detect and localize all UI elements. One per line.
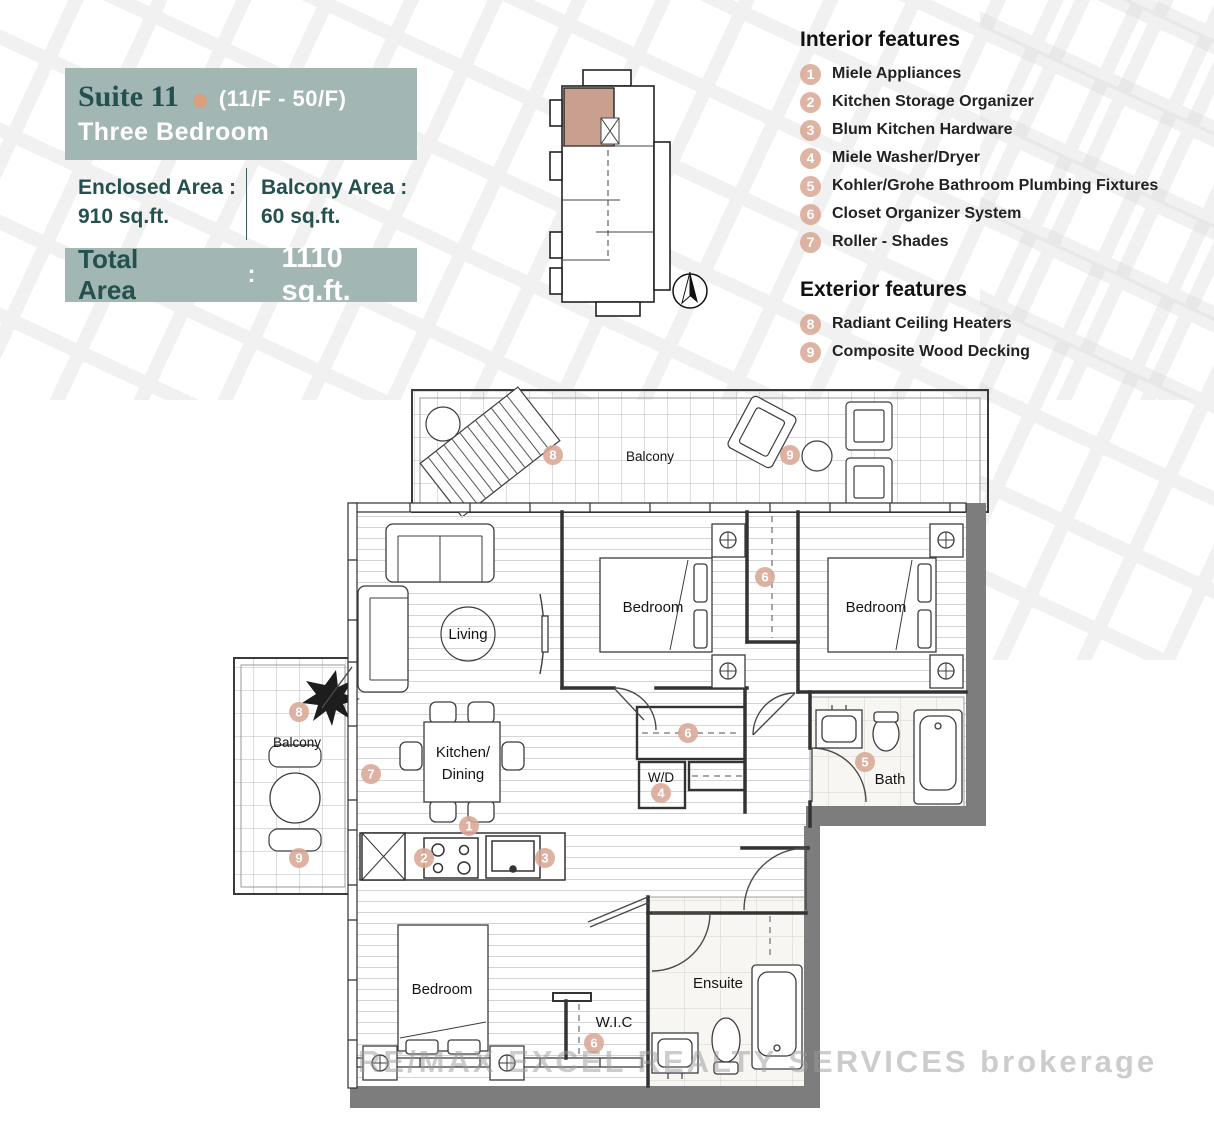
svg-text:6: 6 bbox=[761, 570, 768, 585]
feature-number-badge: 6 bbox=[800, 204, 821, 225]
room-label-balcony-top: Balcony bbox=[626, 449, 674, 464]
floorplan: Balcony Balcony bbox=[220, 380, 1010, 1120]
total-area-colon: : bbox=[247, 261, 255, 289]
svg-text:9: 9 bbox=[786, 448, 793, 463]
kitchen-counter bbox=[360, 833, 565, 880]
suite-dot-icon bbox=[193, 94, 207, 108]
feature-number-badge: 4 bbox=[800, 148, 821, 169]
suite-floor-range: (11/F - 50/F) bbox=[219, 86, 347, 111]
compass-icon bbox=[673, 272, 707, 308]
enclosed-area: Enclosed Area : 910 sq.ft. bbox=[78, 176, 236, 229]
feature-item: 5Kohler/Grohe Bathroom Plumbing Fixtures bbox=[800, 172, 1200, 200]
feature-label: Blum Kitchen Hardware bbox=[832, 121, 1012, 139]
total-area-box: Total Area : 1110 sq.ft. bbox=[65, 248, 417, 302]
feature-number-badge: 8 bbox=[800, 314, 821, 335]
room-label-ensuite: Ensuite bbox=[693, 975, 743, 992]
svg-text:2: 2 bbox=[420, 851, 427, 866]
svg-text:9: 9 bbox=[295, 851, 302, 866]
svg-text:1: 1 bbox=[465, 819, 472, 834]
balcony-round-table bbox=[802, 441, 832, 471]
feature-label: Miele Washer/Dryer bbox=[832, 149, 980, 167]
balcony-area-value: 60 sq.ft. bbox=[261, 205, 407, 229]
feature-number-badge: 2 bbox=[800, 92, 821, 113]
suite-name: Suite 11 bbox=[78, 80, 179, 113]
feature-label: Closet Organizer System bbox=[832, 205, 1021, 223]
plan-marker-7: 7 bbox=[361, 764, 381, 784]
plan-marker-5: 5 bbox=[855, 752, 875, 772]
balcony-left-chair-bottom bbox=[269, 829, 321, 851]
feature-number-badge: 7 bbox=[800, 232, 821, 253]
svg-text:5: 5 bbox=[861, 755, 868, 770]
area-row: Enclosed Area : 910 sq.ft. Balcony Area … bbox=[65, 160, 417, 248]
svg-text:7: 7 bbox=[367, 767, 374, 782]
plan-marker-1: 1 bbox=[459, 816, 479, 836]
keyplan bbox=[535, 35, 715, 330]
area-divider bbox=[246, 168, 247, 240]
total-area-label: Total Area bbox=[78, 244, 199, 306]
svg-text:8: 8 bbox=[549, 448, 556, 463]
plan-marker-6: 6 bbox=[678, 723, 698, 743]
feature-number-badge: 9 bbox=[800, 342, 821, 363]
balcony-left-table bbox=[270, 773, 320, 823]
plan-marker-8: 8 bbox=[289, 702, 309, 722]
exterior-features-list: 8Radiant Ceiling Heaters9Composite Wood … bbox=[800, 310, 1200, 366]
balcony-area-label: Balcony Area : bbox=[261, 176, 407, 200]
feature-item: 7Roller - Shades bbox=[800, 228, 1200, 256]
plan-marker-9: 9 bbox=[780, 445, 800, 465]
room-label-wd: W/D bbox=[648, 770, 674, 785]
interior-features-list: 1Miele Appliances2Kitchen Storage Organi… bbox=[800, 60, 1200, 256]
room-label-living: Living bbox=[448, 626, 487, 643]
svg-text:3: 3 bbox=[541, 851, 548, 866]
enclosed-area-label: Enclosed Area : bbox=[78, 176, 236, 200]
plan-marker-4: 4 bbox=[651, 783, 671, 803]
feature-label: Kitchen Storage Organizer bbox=[832, 93, 1034, 111]
svg-text:6: 6 bbox=[684, 726, 691, 741]
feature-label: Radiant Ceiling Heaters bbox=[832, 315, 1012, 333]
interior-features-title: Interior features bbox=[800, 28, 1200, 52]
svg-text:4: 4 bbox=[657, 786, 665, 801]
plan-marker-6: 6 bbox=[755, 567, 775, 587]
suite-title-box: Suite 11(11/F - 50/F) Three Bedroom bbox=[65, 68, 417, 160]
balcony-top-area: Balcony bbox=[412, 387, 988, 517]
suite-type: Three Bedroom bbox=[78, 118, 269, 147]
balcony-side-table bbox=[426, 407, 460, 441]
room-label-kitchen-1: Kitchen/ bbox=[436, 744, 491, 761]
feature-item: 2Kitchen Storage Organizer bbox=[800, 88, 1200, 116]
feature-label: Miele Appliances bbox=[832, 65, 961, 83]
feature-number-badge: 1 bbox=[800, 64, 821, 85]
room-label-kitchen-2: Dining bbox=[442, 766, 485, 783]
exterior-features-title: Exterior features bbox=[800, 278, 1200, 302]
room-label-bath: Bath bbox=[875, 771, 906, 788]
room-label-bedroom3: Bedroom bbox=[412, 981, 473, 998]
feature-label: Roller - Shades bbox=[832, 233, 948, 251]
room-label-bedroom1: Bedroom bbox=[623, 599, 684, 616]
watermark: RE/MAX EXCEL REALTY SERVICES brokerage bbox=[358, 1044, 858, 1080]
plan-marker-8: 8 bbox=[543, 445, 563, 465]
plan-marker-9: 9 bbox=[289, 848, 309, 868]
svg-text:8: 8 bbox=[295, 705, 302, 720]
feature-item: 1Miele Appliances bbox=[800, 60, 1200, 88]
balcony-area: Balcony Area : 60 sq.ft. bbox=[261, 176, 407, 229]
feature-label: Composite Wood Decking bbox=[832, 343, 1030, 361]
feature-item: 9Composite Wood Decking bbox=[800, 338, 1200, 366]
feature-item: 4Miele Washer/Dryer bbox=[800, 144, 1200, 172]
suite-header-card: Suite 11(11/F - 50/F) Three Bedroom Encl… bbox=[65, 68, 417, 302]
feature-item: 8Radiant Ceiling Heaters bbox=[800, 310, 1200, 338]
room-label-bedroom2: Bedroom bbox=[846, 599, 907, 616]
feature-label: Kohler/Grohe Bathroom Plumbing Fixtures bbox=[832, 177, 1158, 195]
feature-item: 3Blum Kitchen Hardware bbox=[800, 116, 1200, 144]
total-area-value: 1110 sq.ft. bbox=[281, 242, 417, 308]
room-label-balcony-left: Balcony bbox=[273, 735, 321, 750]
plan-marker-2: 2 bbox=[414, 848, 434, 868]
feature-number-badge: 5 bbox=[800, 176, 821, 197]
features-panel: Interior features 1Miele Appliances2Kitc… bbox=[800, 28, 1200, 366]
plan-marker-3: 3 bbox=[535, 848, 555, 868]
feature-number-badge: 3 bbox=[800, 120, 821, 141]
room-label-wic: W.I.C bbox=[596, 1014, 633, 1031]
enclosed-area-value: 910 sq.ft. bbox=[78, 205, 236, 229]
feature-item: 6Closet Organizer System bbox=[800, 200, 1200, 228]
